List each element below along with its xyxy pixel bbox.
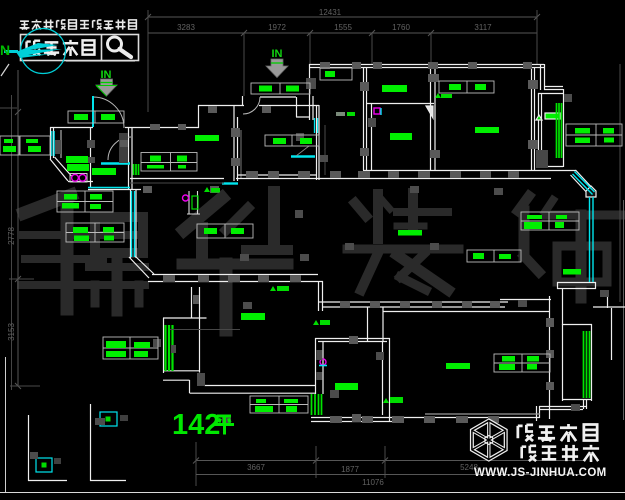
svg-text:1760: 1760	[392, 23, 410, 32]
svg-text:IN: IN	[272, 48, 283, 60]
svg-text:12431: 12431	[319, 8, 342, 17]
svg-text:N: N	[0, 42, 10, 58]
svg-text:1972: 1972	[268, 23, 286, 32]
svg-text:142: 142	[172, 409, 220, 441]
svg-text:1877: 1877	[341, 465, 359, 474]
svg-text:WWW.JS-JINHUA.COM: WWW.JS-JINHUA.COM	[474, 467, 607, 479]
svg-text:2778: 2778	[7, 227, 16, 245]
svg-text:3667: 3667	[247, 463, 265, 472]
svg-text:3153: 3153	[7, 323, 16, 341]
svg-text:3117: 3117	[474, 23, 492, 32]
svg-text:3283: 3283	[177, 23, 195, 32]
svg-text:11076: 11076	[362, 478, 384, 487]
svg-text:1555: 1555	[334, 23, 352, 32]
